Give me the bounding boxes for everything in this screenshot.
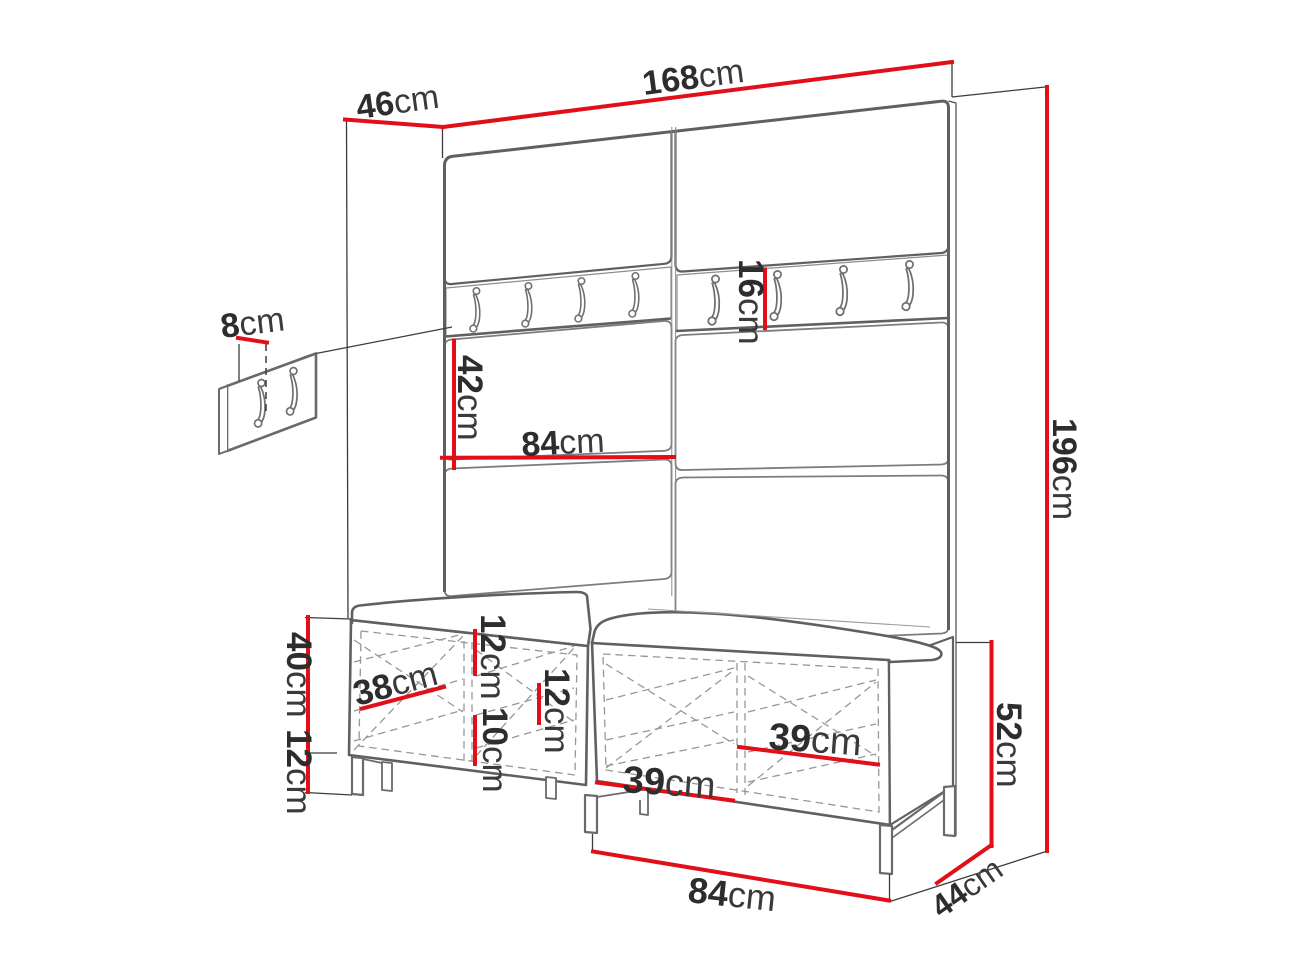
svg-text:196cm: 196cm — [1045, 418, 1083, 520]
svg-text:16cm: 16cm — [731, 259, 770, 345]
svg-text:12cm: 12cm — [279, 729, 318, 815]
svg-text:42cm: 42cm — [450, 355, 489, 441]
svg-text:52cm: 52cm — [989, 702, 1028, 788]
svg-text:40cm: 40cm — [279, 632, 318, 718]
svg-text:10cm: 10cm — [475, 707, 514, 793]
svg-text:39cm: 39cm — [621, 759, 717, 807]
svg-text:84cm: 84cm — [520, 422, 605, 464]
svg-text:8cm: 8cm — [218, 300, 286, 346]
svg-text:39cm: 39cm — [767, 716, 863, 764]
svg-text:12cm: 12cm — [537, 668, 576, 754]
svg-text:12cm: 12cm — [473, 614, 512, 700]
